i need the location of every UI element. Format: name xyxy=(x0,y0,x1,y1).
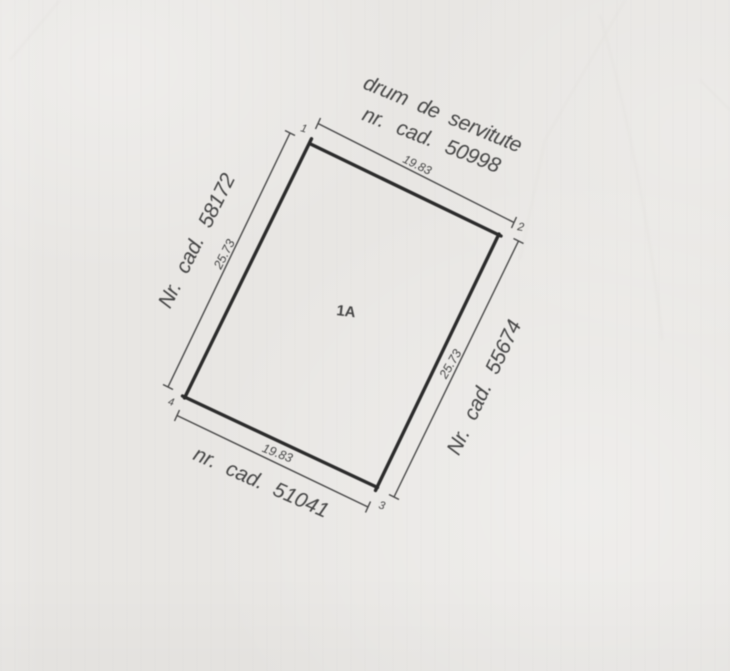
svg-text:1A: 1A xyxy=(336,302,357,321)
svg-text:2: 2 xyxy=(515,221,525,234)
svg-text:25.73: 25.73 xyxy=(211,237,238,272)
svg-text:4: 4 xyxy=(167,396,176,409)
svg-text:3: 3 xyxy=(377,499,387,512)
svg-text:Nr. cad. 55674: Nr. cad. 55674 xyxy=(443,317,527,459)
svg-text:1: 1 xyxy=(299,122,308,135)
